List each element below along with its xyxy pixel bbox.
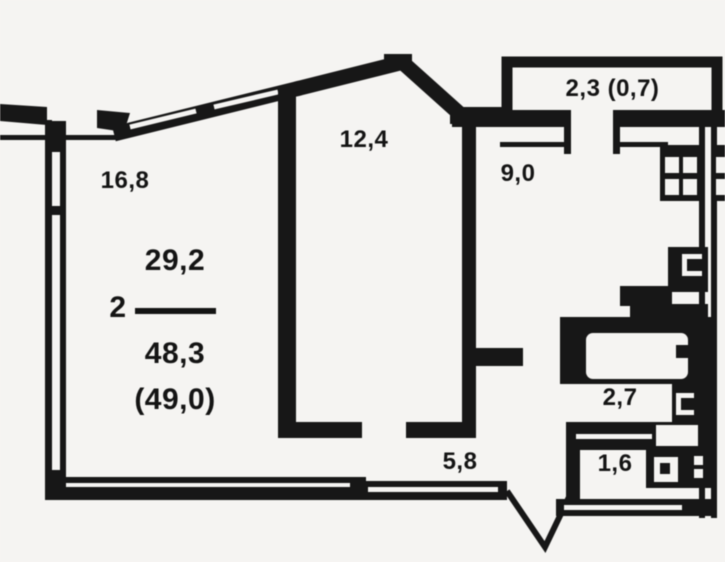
exterior-wall-left — [45, 120, 66, 500]
area-label-hallway: 5,8 — [430, 448, 490, 476]
wall-seam — [368, 487, 498, 492]
wall-seam — [576, 434, 652, 439]
balcony-door-opening — [571, 106, 613, 154]
washbasin-icon — [646, 450, 716, 488]
tap-icon — [676, 345, 689, 358]
area-label-living-room-1: 16,8 — [88, 167, 162, 195]
area-label-wc: 1,6 — [584, 450, 646, 478]
window-sill — [500, 142, 566, 147]
bathtub-icon — [586, 333, 688, 379]
rooms-count-label: 2 — [102, 291, 134, 326]
door-opening — [656, 425, 698, 446]
wall-seam — [564, 505, 682, 510]
interior-wall-wc-left — [566, 448, 580, 502]
kitchen-counter-block — [620, 247, 708, 320]
area-label-bathroom: 2,7 — [588, 384, 652, 412]
door-jamb — [613, 112, 620, 154]
total-area-with-balcony-label: (49,0) — [110, 383, 240, 418]
fraction-bar — [135, 308, 216, 314]
exterior-wall-top-left — [0, 104, 130, 152]
door-jamb — [564, 112, 571, 154]
area-label-living-room-2: 12,4 — [326, 126, 402, 154]
floor-plan: 16,8 12,4 2,3 (0,7) 9,0 5,8 2,7 1,6 29,2… — [0, 0, 725, 562]
area-label-balcony: 2,3 (0,7) — [540, 75, 685, 103]
stove-icon — [660, 145, 725, 201]
area-label-kitchen: 9,0 — [488, 160, 548, 188]
living-area-label: 29,2 — [125, 244, 225, 279]
total-area-label: 48,3 — [125, 337, 225, 372]
riser-icon — [672, 384, 716, 422]
